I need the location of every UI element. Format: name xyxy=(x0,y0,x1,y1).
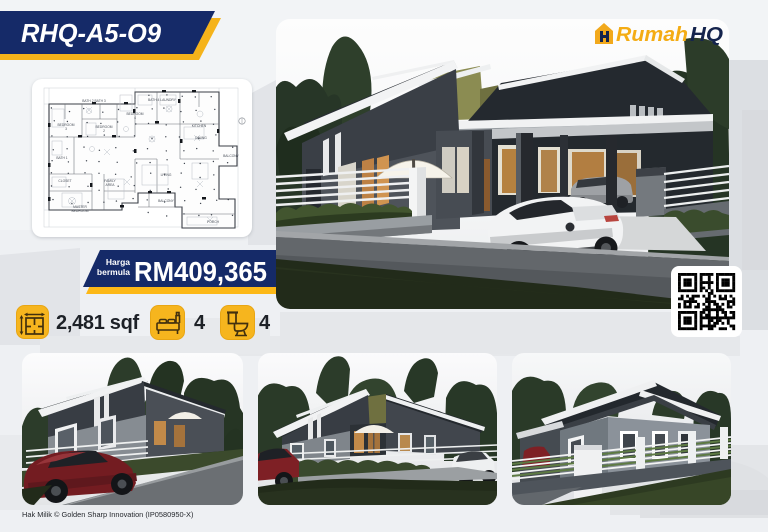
svg-text:KITCHEN: KITCHEN xyxy=(192,124,207,128)
svg-text:Harga: Harga xyxy=(106,257,130,267)
svg-text:2: 2 xyxy=(103,129,105,133)
svg-text:DINING: DINING xyxy=(195,136,207,140)
svg-text:CLOSET: CLOSET xyxy=(58,179,71,183)
svg-text:AREA: AREA xyxy=(106,183,116,187)
svg-text:RM409,365: RM409,365 xyxy=(134,256,267,287)
svg-text:3: 3 xyxy=(65,127,67,131)
svg-text:BALCONY: BALCONY xyxy=(158,199,175,203)
svg-text:HQ: HQ xyxy=(690,24,723,46)
svg-text:4: 4 xyxy=(134,116,136,120)
svg-text:BEDROOM: BEDROOM xyxy=(71,209,88,213)
svg-text:RHQ-A5-O9: RHQ-A5-O9 xyxy=(21,18,162,48)
svg-text:Rumah: Rumah xyxy=(616,24,688,46)
svg-text:PORCH: PORCH xyxy=(207,220,220,224)
svg-text:BATH 1: BATH 1 xyxy=(56,156,67,160)
svg-text:BATH 2 BATH 3: BATH 2 BATH 3 xyxy=(82,99,106,103)
svg-text:BALCONY: BALCONY xyxy=(223,154,240,158)
svg-text:LIVING: LIVING xyxy=(161,173,172,177)
svg-text:BATH 4 LAUNDRY: BATH 4 LAUNDRY xyxy=(148,98,177,102)
svg-text:bermula: bermula xyxy=(97,267,130,277)
